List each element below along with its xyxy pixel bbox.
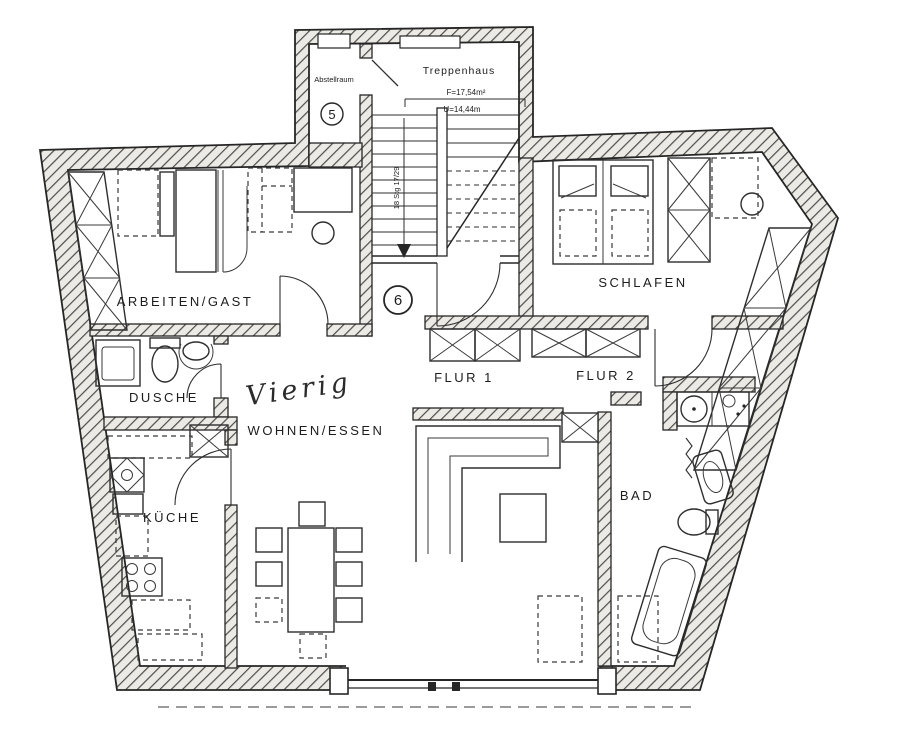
- wall-arbeiten-south: [327, 324, 372, 336]
- room-label-arbeiten-gast: ARBEITEN/GAST: [117, 294, 254, 309]
- wall-bad-west: [598, 412, 611, 666]
- chair: [312, 222, 334, 244]
- dining-table: [288, 528, 334, 632]
- base-cabinet: [138, 634, 202, 660]
- dressing-table: [712, 158, 758, 218]
- wall-vanity-north: [663, 377, 755, 392]
- arbeiten-furniture: [118, 168, 352, 272]
- floor-plan-drawing: Abstellraum 5 Treppenhaus F=17,54m² U=14…: [0, 0, 900, 741]
- window-mullion: [428, 682, 436, 691]
- stairwell-window: [400, 36, 460, 48]
- wall-dusche-east: [214, 398, 228, 417]
- wall-flur1-south: [413, 408, 563, 420]
- room-label-kueche: KÜCHE: [143, 510, 201, 525]
- stool: [741, 193, 763, 215]
- room-label-schlafen: SCHLAFEN: [598, 275, 687, 290]
- handwritten-occupant-name: Vierig: [244, 367, 354, 413]
- room-label-flur2: FLUR 2: [576, 368, 636, 383]
- wall-storage-east: [360, 44, 372, 58]
- blanket: [560, 210, 596, 256]
- bad-toilet: [678, 509, 710, 535]
- sink-drain: [122, 470, 133, 481]
- toilet: [152, 346, 178, 382]
- chair: [336, 528, 362, 552]
- storage-door-leaf: [372, 60, 398, 86]
- dashed-cupboard: [248, 168, 292, 232]
- cabinet: [160, 172, 174, 236]
- wall-kueche-east: [225, 505, 237, 668]
- wall-vanity-west: [663, 392, 677, 430]
- wall-storage-south: [309, 143, 362, 167]
- blanket: [612, 210, 648, 256]
- chair: [336, 598, 362, 622]
- dashed-furniture: [618, 596, 658, 662]
- base-cabinet: [132, 600, 190, 630]
- hall-wardrobes: [430, 329, 640, 361]
- wall-kueche-north: [104, 417, 237, 430]
- stairwell-window: [318, 34, 350, 48]
- room-label-wohnen-essen: WOHNEN/ESSEN: [248, 423, 385, 438]
- stair-slope-line: [447, 138, 519, 248]
- schlafen-furniture: [553, 158, 763, 264]
- wall-dusche-east: [214, 336, 228, 344]
- shelf: [294, 168, 352, 212]
- storage-number: 5: [328, 107, 335, 122]
- wall-stair-west: [360, 95, 372, 336]
- floor-plan-page: Abstellraum 5 Treppenhaus F=17,54m² U=14…: [0, 0, 900, 741]
- chair: [300, 634, 326, 658]
- window-mullion: [452, 682, 460, 691]
- wall-stair-east: [519, 158, 533, 318]
- washing-machine: [562, 413, 598, 442]
- chair: [256, 598, 282, 622]
- window-post: [598, 668, 616, 694]
- counter: [108, 436, 192, 458]
- label-abstellraum: Abstellraum: [314, 75, 354, 84]
- coffee-table: [500, 494, 546, 542]
- stair-steps-note: 18 Stg 17/29: [392, 167, 401, 210]
- apartment-number: 6: [394, 292, 402, 309]
- sofa-cushion: [428, 438, 548, 554]
- room-label-dusche: DUSCHE: [129, 390, 199, 405]
- soap-dish: [723, 395, 735, 407]
- label-treppenhaus: Treppenhaus: [423, 65, 496, 77]
- desk-edge: [218, 170, 247, 272]
- stair-circumference-value: U=14,44m: [443, 105, 480, 114]
- shower-tray: [102, 347, 134, 380]
- dashed-cupboard-inner: [262, 168, 292, 232]
- dashed-furniture: [538, 596, 582, 662]
- arbeiten-door-arc: [280, 276, 328, 324]
- wall-kueche-east: [225, 430, 237, 445]
- wohnen-furniture: [256, 426, 582, 662]
- room-label-bad: BAD: [620, 488, 654, 503]
- chair: [256, 528, 282, 552]
- room-label-flur1: FLUR 1: [434, 370, 494, 385]
- chair: [256, 562, 282, 586]
- desk: [176, 170, 216, 272]
- chair: [336, 562, 362, 586]
- stair-area-value: F=17,54m²: [447, 88, 486, 97]
- window-post: [330, 668, 348, 694]
- kitchen-sink: [110, 458, 144, 492]
- stair-stringer: [437, 108, 447, 256]
- sink: [183, 342, 209, 360]
- wall-bad-north: [611, 392, 641, 405]
- dusche-fixtures: [96, 338, 213, 386]
- guest-bed: [118, 170, 158, 236]
- bad-curtain-squiggle: [686, 438, 692, 478]
- chair: [299, 502, 325, 526]
